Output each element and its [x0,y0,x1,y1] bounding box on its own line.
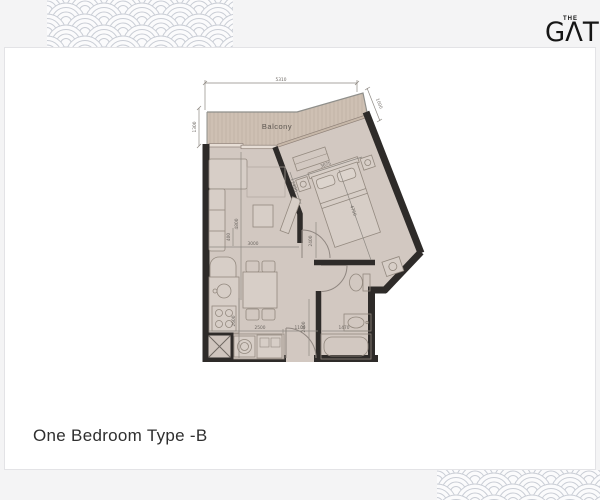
page: THE GΛTE One Bedroom Type -B [0,0,600,500]
brand-logo: THE GΛTE [545,14,600,46]
logo-gate-text: GΛTE [545,19,600,46]
wave-pattern-bottom-icon [437,470,600,500]
unit-type-title: One Bedroom Type -B [33,426,208,446]
plan-card: One Bedroom Type -B [4,47,596,470]
wave-pattern-top-icon [47,0,233,47]
